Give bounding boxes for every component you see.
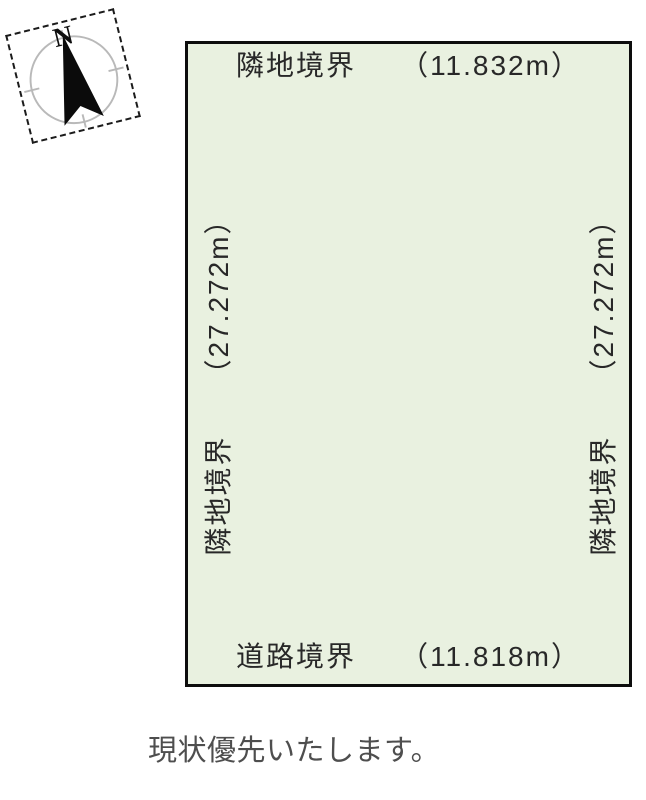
- boundary-length-bottom: （11.818m）: [400, 640, 581, 674]
- boundary-name-right: 隣地境界: [587, 435, 621, 555]
- compass-rose: N: [5, 8, 141, 144]
- boundary-length-top: （11.832m）: [400, 49, 581, 83]
- boundary-label-bottom: 道路境界 （11.818m）: [188, 640, 629, 674]
- boundary-label-left: 隣地境界 （27.272m）: [202, 205, 236, 556]
- caption-note: 現状優先いたします。: [148, 727, 440, 769]
- land-plot-diagram: N 隣地境界 （11.832m） 隣地境界 （27.272m） 隣地境界 （27…: [0, 0, 646, 800]
- compass-graphic: [8, 11, 139, 142]
- boundary-label-right: 隣地境界 （27.272m）: [587, 205, 621, 556]
- boundary-length-left: （27.272m）: [202, 205, 236, 388]
- plot-boundary-rect: 隣地境界 （11.832m） 隣地境界 （27.272m） 隣地境界 （27.2…: [185, 41, 632, 687]
- boundary-label-top: 隣地境界 （11.832m）: [188, 49, 629, 83]
- boundary-name-left: 隣地境界: [202, 435, 236, 555]
- boundary-length-right: （27.272m）: [587, 205, 621, 388]
- boundary-name-top: 隣地境界: [236, 49, 356, 83]
- boundary-name-bottom: 道路境界: [236, 640, 356, 674]
